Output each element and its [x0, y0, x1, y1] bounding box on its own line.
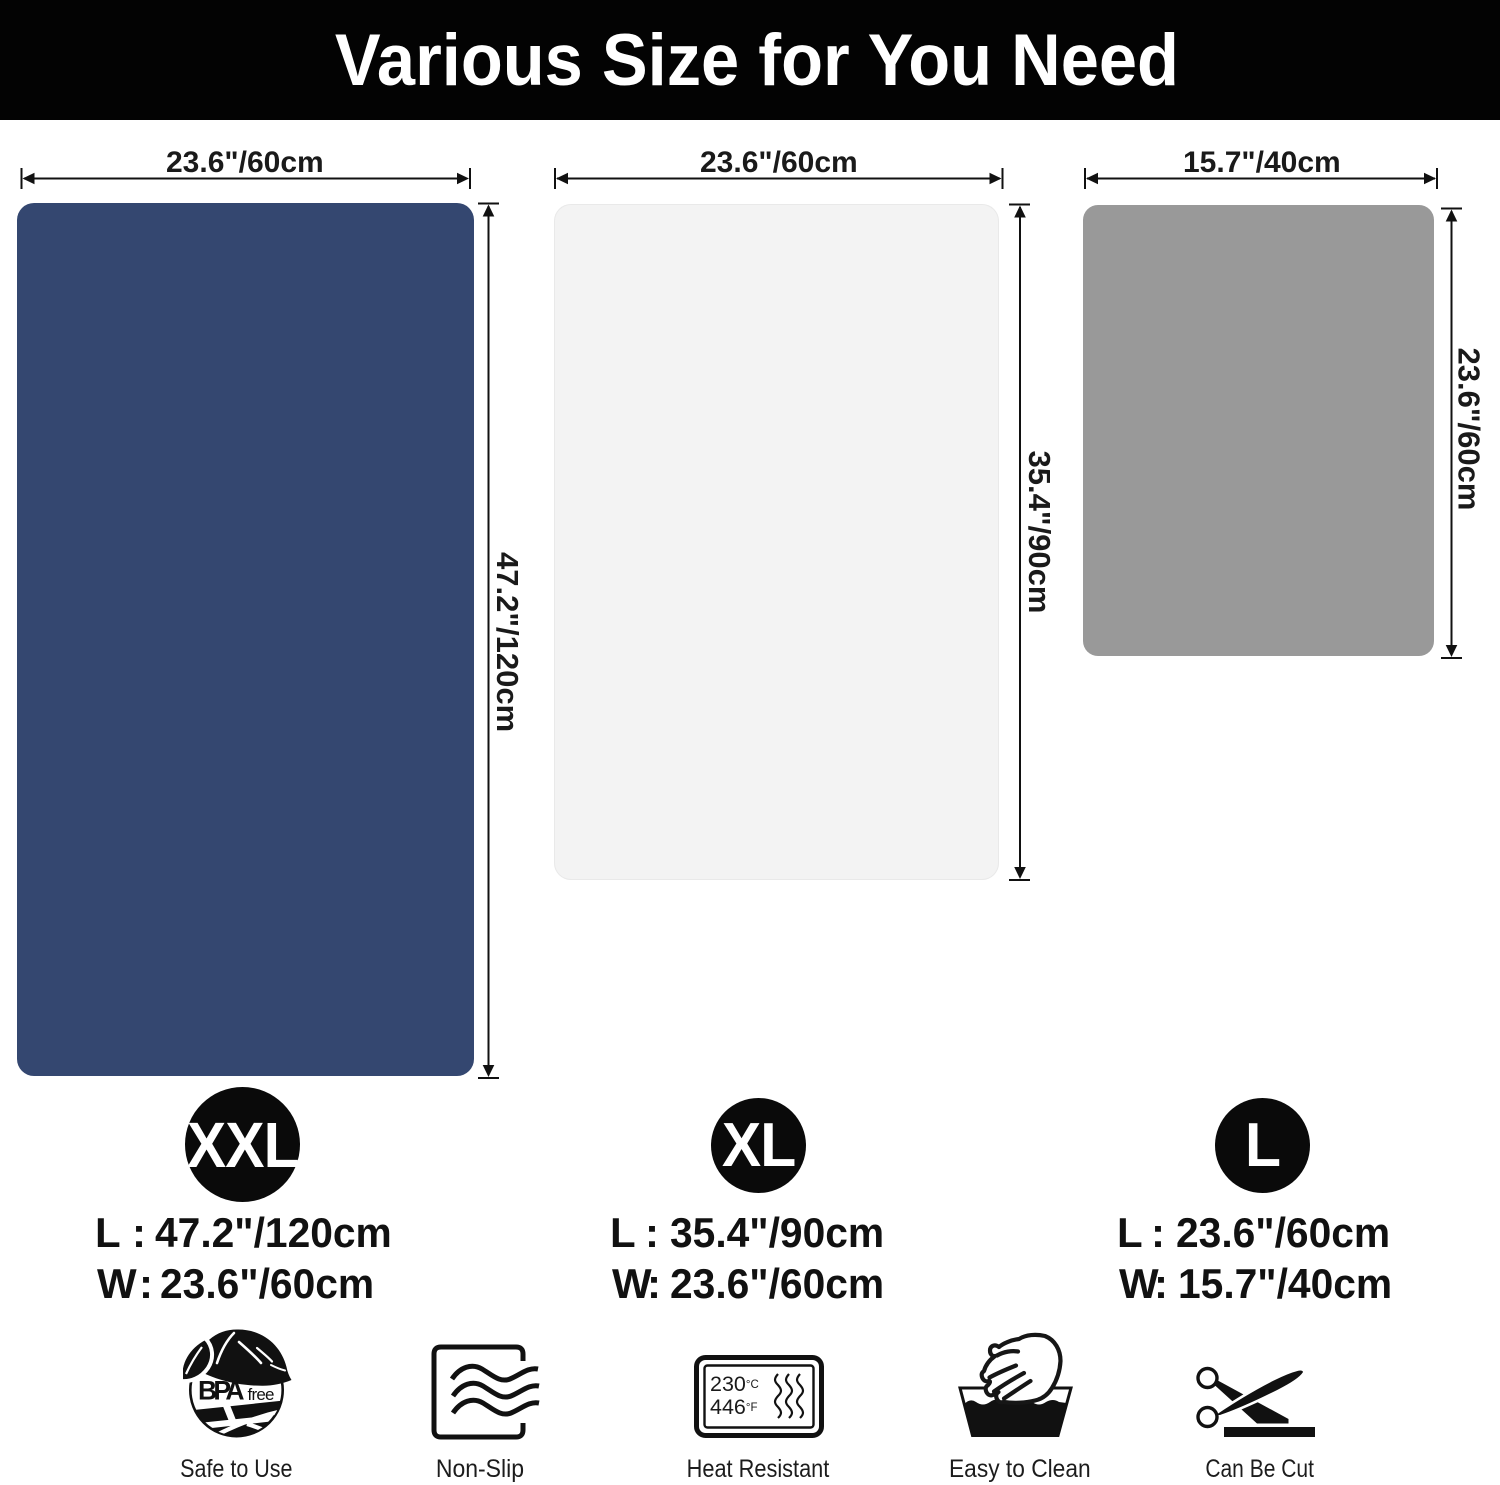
svg-text:BPA: BPA [198, 1376, 245, 1406]
svg-text:free: free [248, 1385, 275, 1404]
